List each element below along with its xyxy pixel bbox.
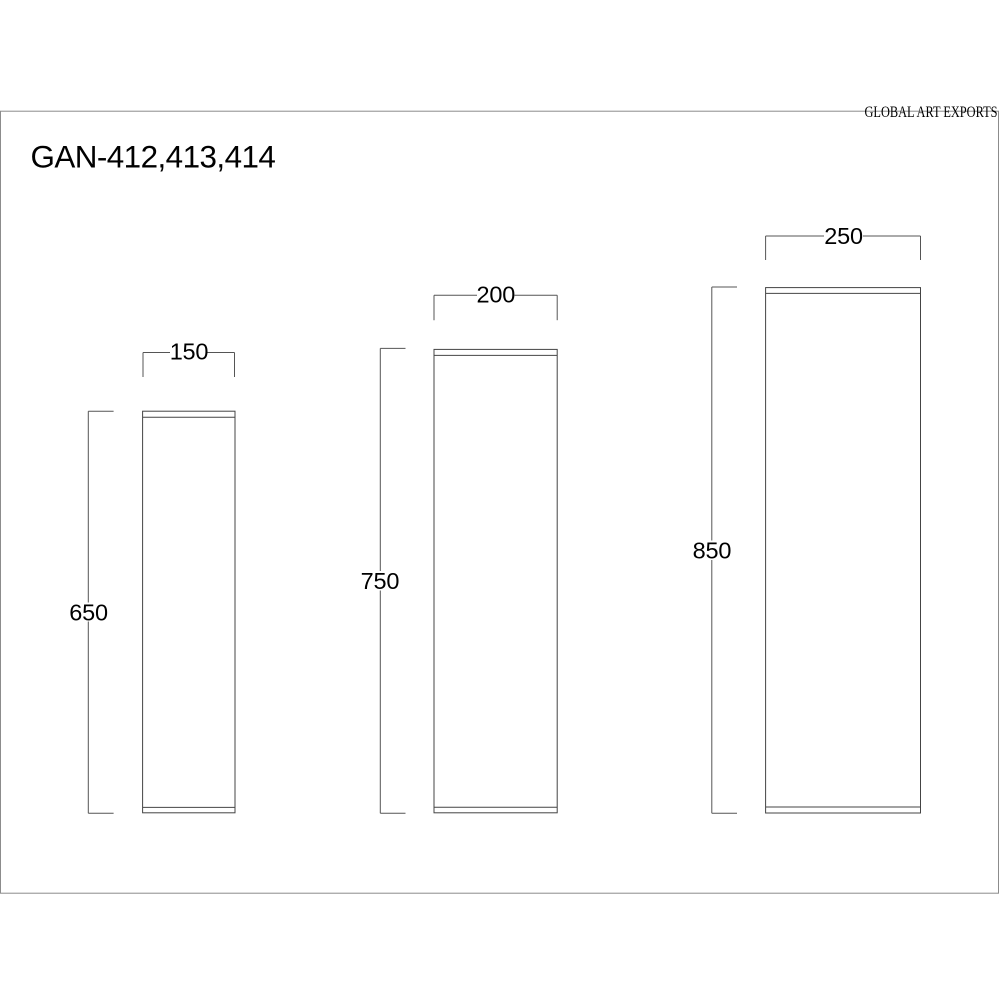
svg-text:GLOBAL ART EXPORTS: GLOBAL ART EXPORTS (865, 104, 998, 121)
svg-text:GAN-412,413,414: GAN-412,413,414 (31, 140, 276, 175)
svg-text:650: 650 (69, 600, 108, 626)
svg-text:850: 850 (693, 537, 732, 563)
svg-text:150: 150 (170, 339, 209, 365)
svg-text:750: 750 (361, 568, 400, 594)
svg-text:200: 200 (476, 281, 515, 307)
svg-text:250: 250 (824, 223, 863, 249)
